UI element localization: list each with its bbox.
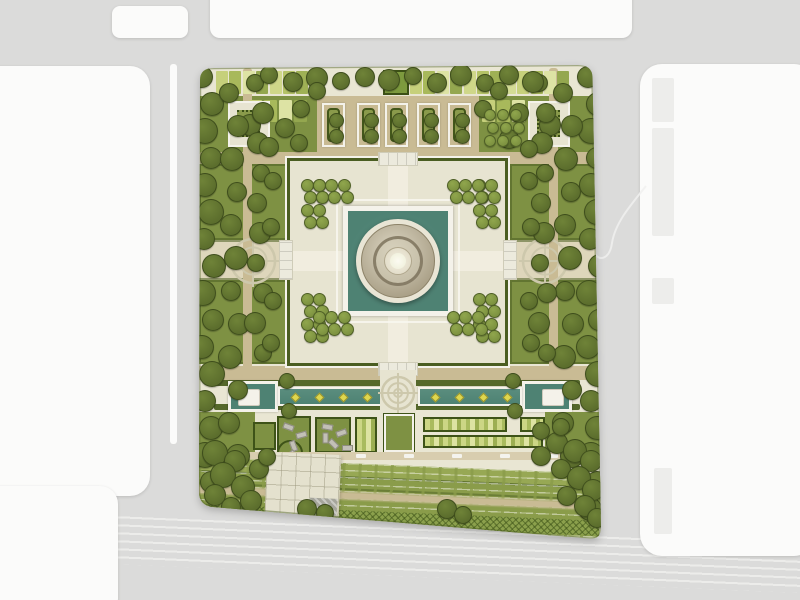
- path-dash: [404, 454, 414, 458]
- grove-tree: [301, 318, 314, 331]
- tree: [308, 82, 326, 100]
- tree: [552, 418, 570, 436]
- grove-tree: [488, 216, 501, 229]
- grove-tree: [475, 191, 488, 204]
- tree: [292, 100, 310, 118]
- tree: [260, 66, 278, 84]
- tree: [202, 309, 224, 331]
- bed-tree: [392, 113, 407, 128]
- grove-tree: [485, 204, 498, 217]
- grove-tree: [301, 293, 314, 306]
- tree: [522, 218, 540, 236]
- tree: [555, 281, 575, 301]
- tree: [558, 246, 582, 270]
- grove-tree: [472, 311, 485, 324]
- garden-plot: [423, 417, 507, 432]
- planting-bed: [322, 103, 345, 147]
- tree: [190, 280, 216, 306]
- tree: [264, 172, 282, 190]
- tree: [279, 373, 295, 389]
- grove-tree: [510, 135, 522, 147]
- grove-tree: [301, 179, 314, 192]
- grove-tree: [325, 311, 338, 324]
- planting-bed: [385, 103, 408, 147]
- grove-tree: [338, 179, 351, 192]
- tree: [202, 254, 226, 278]
- grove-tree: [488, 305, 501, 318]
- bed-tree: [455, 113, 470, 128]
- grove-tree: [316, 216, 329, 229]
- tree: [520, 172, 538, 190]
- garden-bench: [323, 433, 329, 444]
- tree: [218, 412, 240, 434]
- grove-tree: [450, 191, 463, 204]
- tree: [561, 115, 583, 137]
- tree: [588, 309, 610, 331]
- grove-tree: [301, 204, 314, 217]
- tree: [227, 182, 247, 202]
- tree: [536, 164, 554, 182]
- grove-tree: [485, 293, 498, 306]
- grove-tree: [473, 204, 486, 217]
- stair-flight: [378, 152, 418, 166]
- garden-plot: [423, 435, 543, 448]
- tree: [193, 228, 215, 250]
- tree: [584, 199, 610, 225]
- bed-tree: [392, 129, 407, 144]
- path-dash: [500, 454, 510, 458]
- grove-tree: [484, 109, 496, 121]
- grove-tree: [459, 179, 472, 192]
- tree: [576, 335, 600, 359]
- tree: [577, 66, 599, 88]
- grove-tree: [341, 191, 354, 204]
- stair-flight: [503, 240, 517, 280]
- tree: [522, 71, 544, 93]
- dome-oculus: [390, 253, 406, 269]
- tree: [531, 193, 551, 213]
- grove-tree: [313, 293, 326, 306]
- tree: [262, 218, 280, 236]
- grove-tree: [472, 179, 485, 192]
- tree: [561, 182, 581, 202]
- path-dash: [356, 454, 366, 458]
- path-dash: [452, 454, 462, 458]
- tree: [553, 83, 573, 103]
- grove-tree: [304, 216, 317, 229]
- tree: [507, 403, 523, 419]
- tree: [586, 92, 610, 116]
- central-dome-monument: [356, 219, 440, 303]
- tree: [355, 67, 375, 87]
- bed-tree: [364, 129, 379, 144]
- pool-island: [542, 389, 564, 406]
- grove-tree: [316, 191, 329, 204]
- tree: [576, 280, 602, 306]
- planting-bed: [417, 103, 440, 147]
- tree: [275, 118, 295, 138]
- tree: [522, 334, 540, 352]
- tree: [520, 292, 538, 310]
- tree: [585, 416, 609, 440]
- pavement-medallion: [376, 371, 420, 415]
- garden-plot: [355, 417, 377, 453]
- tree: [227, 115, 249, 137]
- tree: [454, 506, 472, 524]
- grove-tree: [316, 323, 329, 336]
- tree: [588, 254, 612, 278]
- platform-path-west: [289, 251, 343, 271]
- grove-tree: [488, 330, 501, 343]
- grove-tree: [304, 330, 317, 343]
- tree: [259, 137, 279, 157]
- grove-tree: [484, 135, 496, 147]
- tree: [490, 82, 508, 100]
- grove-tree: [500, 122, 512, 134]
- planting-bed: [357, 103, 380, 147]
- tree: [221, 281, 241, 301]
- grove-tree: [497, 135, 509, 147]
- site-plan-canvas: [0, 0, 800, 600]
- planting-bed: [448, 103, 471, 147]
- tree: [586, 147, 608, 169]
- tree: [264, 292, 282, 310]
- grove-tree: [497, 109, 509, 121]
- tree: [290, 134, 308, 152]
- tree: [297, 499, 317, 519]
- garden-bench: [342, 445, 353, 451]
- tree: [258, 448, 276, 466]
- tree: [562, 313, 584, 335]
- garden-plot: [384, 414, 414, 452]
- grove-tree: [476, 216, 489, 229]
- grove-tree: [328, 323, 341, 336]
- tree: [580, 390, 602, 412]
- grove-tree: [475, 323, 488, 336]
- grove-tree: [473, 293, 486, 306]
- garden-site: [0, 0, 800, 600]
- tree: [579, 173, 603, 197]
- grove-tree: [328, 191, 341, 204]
- grove-tree: [325, 179, 338, 192]
- platform-path-east: [453, 251, 506, 271]
- grove-tree: [450, 323, 463, 336]
- tree: [224, 246, 248, 270]
- bed-tree: [364, 113, 379, 128]
- grove-tree: [341, 323, 354, 336]
- tree: [218, 345, 242, 369]
- tree: [520, 140, 538, 158]
- tree: [554, 147, 578, 171]
- grove-tree: [485, 179, 498, 192]
- tree: [283, 72, 303, 92]
- grove-tree: [459, 311, 472, 324]
- garden-plot: [253, 422, 276, 450]
- tree: [505, 373, 521, 389]
- bed-tree: [424, 113, 439, 128]
- tree: [332, 72, 350, 90]
- grove-tree: [313, 204, 326, 217]
- grove-tree: [313, 179, 326, 192]
- tree: [316, 504, 334, 522]
- platform-path-south: [388, 316, 408, 364]
- bed-tree: [329, 113, 344, 128]
- bed-tree: [329, 129, 344, 144]
- tree: [532, 422, 550, 440]
- grove-tree: [513, 122, 525, 134]
- tree: [587, 508, 607, 528]
- tree: [220, 147, 244, 171]
- grove-tree: [462, 191, 475, 204]
- grove-tree: [510, 109, 522, 121]
- tree: [190, 335, 214, 359]
- grove-tree: [487, 122, 499, 134]
- grove-tree: [488, 191, 501, 204]
- tree: [240, 490, 262, 512]
- bed-tree: [455, 129, 470, 144]
- tree: [193, 173, 217, 197]
- bed-tree: [424, 129, 439, 144]
- tree: [221, 497, 241, 517]
- grove-tree: [338, 311, 351, 324]
- grove-tree: [447, 179, 460, 192]
- tree: [247, 193, 267, 213]
- tree: [585, 361, 611, 387]
- grove-tree: [447, 311, 460, 324]
- tree: [538, 344, 556, 362]
- stair-flight: [279, 240, 293, 280]
- tree: [262, 334, 280, 352]
- tree: [531, 446, 551, 466]
- grove-tree: [304, 191, 317, 204]
- tree: [219, 83, 239, 103]
- tree: [536, 103, 556, 123]
- grove-tree: [313, 311, 326, 324]
- grove-tree: [462, 323, 475, 336]
- tree: [252, 102, 274, 124]
- tree: [579, 228, 601, 250]
- tree: [281, 403, 297, 419]
